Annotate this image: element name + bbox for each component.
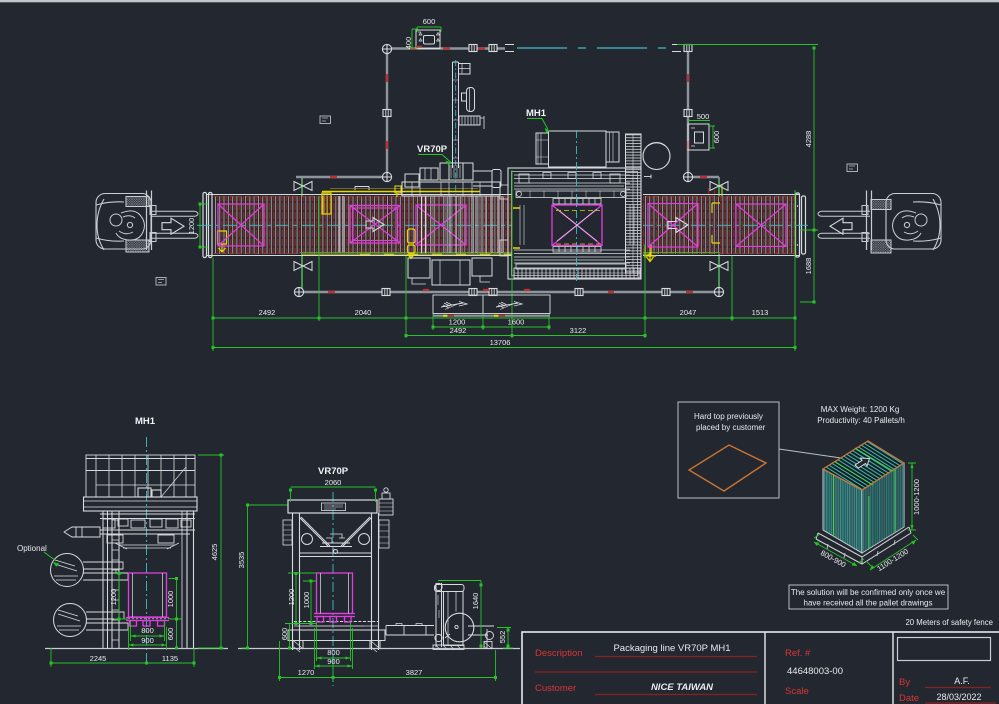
svg-text:1000: 1000 [166,591,175,608]
svg-text:VR70P: VR70P [417,144,448,155]
svg-text:Customer: Customer [535,683,576,694]
svg-text:800: 800 [327,648,340,657]
svg-text:600: 600 [166,628,175,641]
svg-text:The solution will be confirmed: The solution will be confirmed only once… [791,588,946,597]
svg-text:600: 600 [423,17,436,26]
svg-text:2060: 2060 [325,478,342,487]
svg-text:800: 800 [141,626,154,635]
svg-text:3827: 3827 [406,668,423,677]
svg-text:4288: 4288 [804,131,813,148]
svg-text:Description: Description [535,648,583,659]
svg-text:1513: 1513 [752,308,769,317]
svg-text:2492: 2492 [259,308,276,317]
svg-text:400: 400 [404,37,413,50]
svg-text:44648003-00: 44648003-00 [787,666,843,677]
svg-text:have received all the pallet d: have received all the pallet drawings [804,599,933,608]
svg-text:Hard top previously: Hard top previously [694,412,763,421]
svg-text:552: 552 [498,631,507,644]
svg-text:1200: 1200 [109,589,118,606]
svg-text:1000-1200: 1000-1200 [912,479,921,515]
svg-text:28/03/2022: 28/03/2022 [936,692,981,702]
svg-text:placed by customer: placed by customer [696,423,766,432]
svg-text:A.F.: A.F. [954,676,970,686]
svg-text:1688: 1688 [804,258,813,275]
svg-text:By: By [899,677,910,688]
svg-text:Productivity: 40 Pallets/h: Productivity: 40 Pallets/h [817,416,905,425]
svg-text:MAX Weight: 1200 Kg: MAX Weight: 1200 Kg [821,405,900,414]
svg-text:1600: 1600 [508,318,525,327]
svg-text:900: 900 [141,636,154,645]
svg-text:2492: 2492 [450,326,467,335]
svg-text:1000: 1000 [302,592,311,609]
svg-text:600: 600 [280,628,289,641]
svg-text:Optional: Optional [17,544,47,553]
svg-text:1200: 1200 [287,589,296,606]
svg-text:MH1: MH1 [135,416,156,427]
svg-text:NICE TAIWAN: NICE TAIWAN [651,682,714,693]
svg-text:MH1: MH1 [526,108,547,119]
svg-text:1640: 1640 [471,593,480,610]
svg-text:20 Meters of safety fence: 20 Meters of safety fence [905,618,993,627]
svg-text:2245: 2245 [90,654,107,663]
svg-text:Ref. #: Ref. # [785,648,811,659]
svg-text:600: 600 [712,131,721,144]
svg-text:2040: 2040 [355,308,372,317]
svg-text:Date: Date [899,693,919,704]
svg-text:Scale: Scale [785,686,809,697]
svg-text:3122: 3122 [570,326,587,335]
svg-text:1135: 1135 [162,654,178,663]
svg-text:3535: 3535 [237,552,246,569]
svg-text:2047: 2047 [680,308,697,317]
svg-text:1200: 1200 [187,218,196,235]
svg-text:VR70P: VR70P [318,466,349,477]
svg-text:13706: 13706 [490,338,511,347]
svg-text:Packaging line VR70P MH1: Packaging line VR70P MH1 [613,643,730,654]
svg-text:900: 900 [327,657,340,666]
svg-text:500: 500 [697,112,710,121]
svg-text:1270: 1270 [298,668,315,677]
svg-text:4625: 4625 [210,544,219,561]
